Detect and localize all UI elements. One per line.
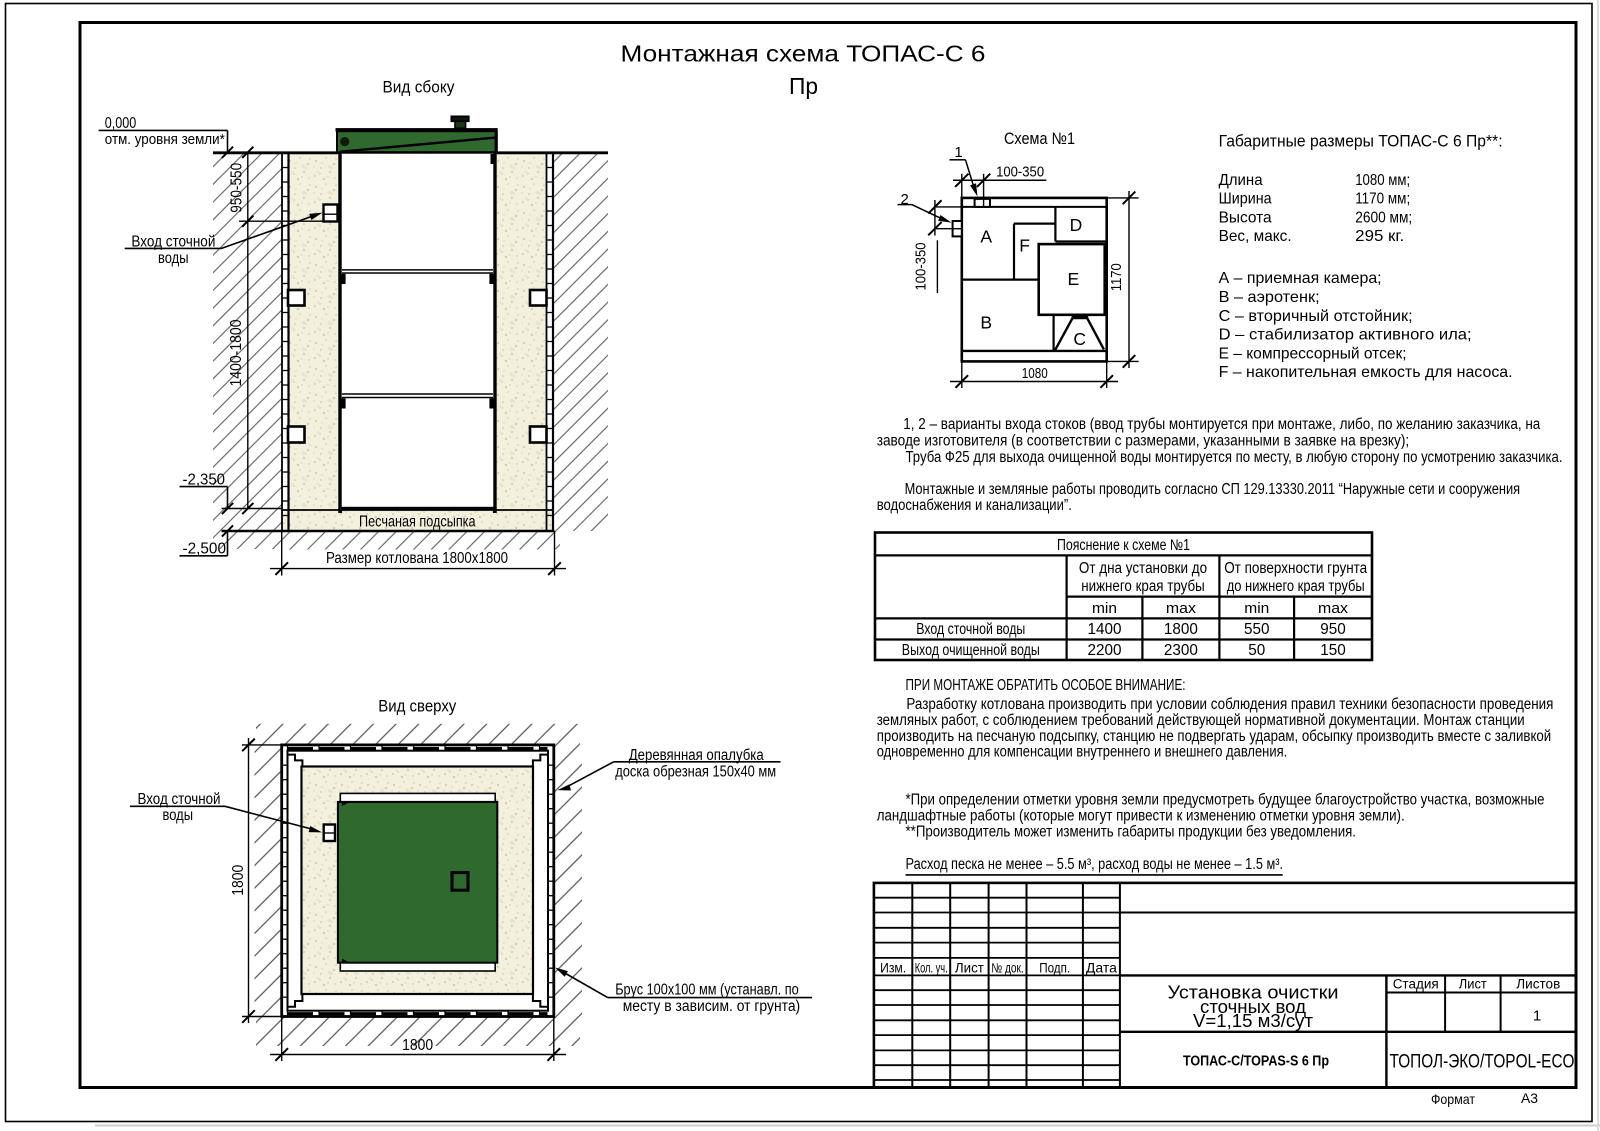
svg-text:1: 1 [954, 144, 962, 161]
svg-text:min: min [1244, 600, 1269, 617]
svg-text:1170 мм;: 1170 мм; [1355, 191, 1410, 208]
svg-text:Дата: Дата [1086, 960, 1117, 975]
svg-text:Ширина: Ширина [1219, 191, 1272, 208]
svg-text:№ док.: № док. [991, 960, 1024, 975]
svg-text:Вход сточной воды: Вход сточной воды [916, 621, 1025, 638]
svg-text:Е: Е [1067, 269, 1079, 289]
svg-text:воды: воды [163, 807, 194, 824]
svg-text:ландшафтные работы (которые мо: ландшафтные работы (которые могут привес… [877, 808, 1405, 825]
svg-text:0,000: 0,000 [105, 115, 137, 132]
svg-text:950: 950 [1320, 621, 1346, 638]
svg-text:месту в зависим. от грунта): месту в зависим. от грунта) [623, 998, 801, 1015]
svg-text:Кол. уч.: Кол. уч. [915, 960, 948, 975]
svg-text:Изм.: Изм. [880, 960, 906, 975]
svg-text:С – вторичный отстойник;: С – вторичный отстойник; [1219, 308, 1413, 325]
svg-text:Формат: Формат [1431, 1091, 1476, 1107]
svg-text:2200: 2200 [1088, 642, 1122, 659]
svg-text:2600 мм;: 2600 мм; [1355, 209, 1412, 226]
svg-text:производить на песчаную подсып: производить на песчаную подсыпку, станци… [877, 728, 1551, 745]
svg-text:воды: воды [158, 250, 189, 267]
svg-text:1170: 1170 [1109, 263, 1125, 291]
svg-text:Лист: Лист [1459, 976, 1487, 991]
svg-text:Труба Ф25 для выхода очищенной: Труба Ф25 для выхода очищенной воды монт… [906, 449, 1563, 466]
svg-text:А3: А3 [1521, 1090, 1538, 1106]
svg-text:1800: 1800 [230, 865, 247, 896]
svg-text:водоснабжения и канализации”.: водоснабжения и канализации”. [877, 497, 1072, 514]
svg-text:**Производитель может изменить: **Производитель может изменить габариты … [906, 824, 1357, 841]
svg-text:Е – компрессорный отсек;: Е – компрессорный отсек; [1219, 345, 1407, 362]
svg-text:Расход песка не менее – 5.5 м³: Расход песка не менее – 5.5 м³, расход в… [906, 856, 1284, 873]
svg-text:Схема №1: Схема №1 [1004, 130, 1075, 148]
svg-text:доска обрезная 150х40 мм: доска обрезная 150х40 мм [615, 763, 776, 780]
svg-text:150: 150 [1320, 642, 1346, 659]
svg-text:Вид сбоку: Вид сбоку [383, 78, 455, 97]
svg-text:ПРИ МОНТАЖЕ ОБРАТИТЬ ОСОБОЕ ВН: ПРИ МОНТАЖЕ ОБРАТИТЬ ОСОБОЕ ВНИМАНИЕ: [906, 677, 1186, 694]
svg-text:С: С [1073, 329, 1086, 349]
svg-text:max: max [1166, 600, 1197, 617]
svg-text:*При определении отметки уровн: *При определении отметки уровня земли пр… [906, 792, 1545, 809]
svg-text:1400-1800: 1400-1800 [228, 319, 245, 386]
svg-text:отм. уровня земли*: отм. уровня земли* [105, 132, 225, 148]
svg-text:D: D [1070, 215, 1083, 235]
svg-text:F – накопительная емкость для: F – накопительная емкость для насоса. [1219, 364, 1513, 381]
svg-text:Стадия: Стадия [1393, 976, 1439, 991]
svg-text:От поверхности грунта: От поверхности грунта [1224, 560, 1367, 577]
svg-text:Брус 100х100 мм (устанавл. по: Брус 100х100 мм (устанавл. по [615, 981, 799, 998]
svg-text:V=1,15 м3/сут: V=1,15 м3/сут [1193, 1010, 1314, 1031]
svg-text:Пояснение к схеме №1: Пояснение к схеме №1 [1057, 537, 1190, 554]
svg-text:1, 2 – варианты входа стоков: 1, 2 – варианты входа стоков (ввод трубы… [903, 416, 1540, 433]
svg-text:заводе изготовителя (в соответ: заводе изготовителя (в соответствии с ра… [877, 432, 1409, 449]
svg-text:А: А [980, 227, 992, 247]
svg-text:D – стабилизатор активного ила: D – стабилизатор активного ила; [1219, 327, 1472, 344]
svg-text:1: 1 [1533, 1007, 1541, 1024]
svg-text:1080 мм;: 1080 мм; [1355, 172, 1410, 189]
svg-text:Выход очищенной воды: Выход очищенной воды [902, 642, 1040, 659]
svg-text:min: min [1092, 600, 1117, 617]
svg-text:100-350: 100-350 [914, 243, 930, 291]
svg-text:Разработку котлована производи: Разработку котлована производить при усл… [906, 696, 1553, 713]
svg-text:max: max [1318, 600, 1349, 617]
svg-text:Высота: Высота [1219, 209, 1272, 226]
svg-text:1800: 1800 [402, 1037, 433, 1054]
svg-text:одновременно для компенсации в: одновременно для компенсации внутреннего… [877, 744, 1287, 761]
svg-text:до нижнего края трубы: до нижнего края трубы [1227, 578, 1365, 595]
svg-text:Длина: Длина [1219, 172, 1263, 189]
svg-text:Монтажные и земляные работы пр: Монтажные и земляные работы проводить со… [905, 481, 1521, 498]
svg-text:Вес, макс.: Вес, макс. [1219, 228, 1292, 245]
svg-text:295 кг.: 295 кг. [1355, 228, 1404, 245]
svg-text:1800: 1800 [1164, 621, 1198, 638]
svg-text:1080: 1080 [1022, 366, 1048, 382]
svg-text:земляных работ, с соблюдением: земляных работ, с соблюдением требований… [877, 712, 1525, 729]
svg-text:100-350: 100-350 [996, 165, 1044, 181]
svg-text:Подп.: Подп. [1039, 960, 1070, 975]
svg-text:нижнего края трубы: нижнего края трубы [1081, 578, 1205, 595]
svg-text:2300: 2300 [1164, 642, 1198, 659]
svg-text:В: В [980, 313, 992, 333]
svg-text:А – приемная камера;: А – приемная камера; [1219, 270, 1382, 287]
svg-text:F: F [1019, 236, 1030, 256]
svg-text:Песчаная подсыпка: Песчаная подсыпка [359, 514, 476, 531]
svg-text:Монтажная схема ТОПАС-С 6: Монтажная схема ТОПАС-С 6 [621, 41, 986, 67]
svg-text:50: 50 [1248, 642, 1265, 659]
svg-text:Вид сверху: Вид сверху [378, 697, 456, 716]
svg-text:Размер котлована 1800х1800: Размер котлована 1800х1800 [326, 550, 508, 567]
svg-text:Листов: Листов [1516, 976, 1560, 991]
svg-text:550: 550 [1244, 621, 1270, 638]
svg-text:От дна установки до: От дна установки до [1079, 560, 1207, 577]
svg-text:1400: 1400 [1088, 621, 1122, 638]
svg-text:-2,500: -2,500 [183, 540, 227, 557]
svg-text:В – аэротенк;: В – аэротенк; [1219, 289, 1320, 306]
svg-text:ТОПАС-С/TOPAS-S 6 Пр: ТОПАС-С/TOPAS-S 6 Пр [1183, 1053, 1329, 1069]
svg-text:950-550: 950-550 [229, 163, 246, 213]
svg-text:Вход сточной: Вход сточной [138, 791, 221, 808]
svg-text:Пр: Пр [789, 73, 818, 99]
svg-text:Габаритные размеры ТОПАС-С 6 П: Габаритные размеры ТОПАС-С 6 Пр**: [1219, 132, 1503, 150]
svg-text:ТОПОЛ-ЭКО/TOPOL-ECO: ТОПОЛ-ЭКО/TOPOL-ECO [1390, 1050, 1575, 1072]
svg-text:Лист: Лист [955, 960, 984, 975]
